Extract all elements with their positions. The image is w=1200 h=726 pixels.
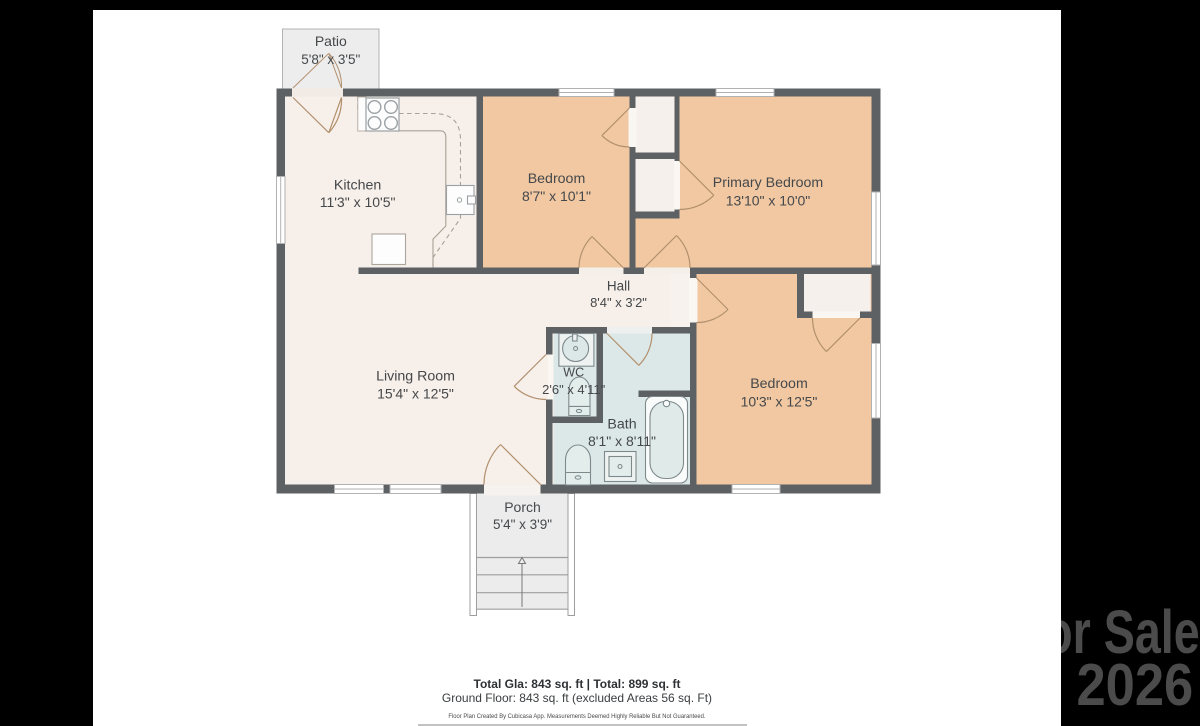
svg-text:5'4" x 3'9": 5'4" x 3'9" (493, 517, 552, 532)
svg-text:8'4" x 3'2": 8'4" x 3'2" (590, 295, 647, 310)
svg-text:WC: WC (563, 366, 584, 380)
svg-text:Bedroom: Bedroom (750, 376, 808, 392)
svg-text:2'6" x 4'11": 2'6" x 4'11" (542, 382, 605, 397)
svg-text:Primary Bedroom: Primary Bedroom (713, 175, 823, 191)
svg-text:8'7" x 10'1": 8'7" x 10'1" (522, 188, 591, 204)
svg-text:8'1" x 8'11": 8'1" x 8'11" (588, 433, 656, 449)
svg-text:Bedroom: Bedroom (528, 171, 586, 187)
svg-text:Bath: Bath (607, 417, 636, 433)
svg-text:Patio: Patio (315, 33, 347, 49)
svg-text:11'3" x 10'5": 11'3" x 10'5" (320, 194, 396, 210)
svg-text:Porch: Porch (504, 499, 541, 515)
svg-text:15'4" x 12'5": 15'4" x 12'5" (377, 386, 454, 402)
svg-text:13'10" x 10'0": 13'10" x 10'0" (726, 193, 811, 209)
svg-text:Kitchen: Kitchen (334, 178, 381, 194)
svg-text:Hall: Hall (607, 279, 630, 294)
svg-text:5'8" x 3'5": 5'8" x 3'5" (301, 52, 360, 67)
svg-text:10'3" x 12'5": 10'3" x 12'5" (741, 394, 818, 410)
svg-text:Living Room: Living Room (376, 369, 455, 385)
